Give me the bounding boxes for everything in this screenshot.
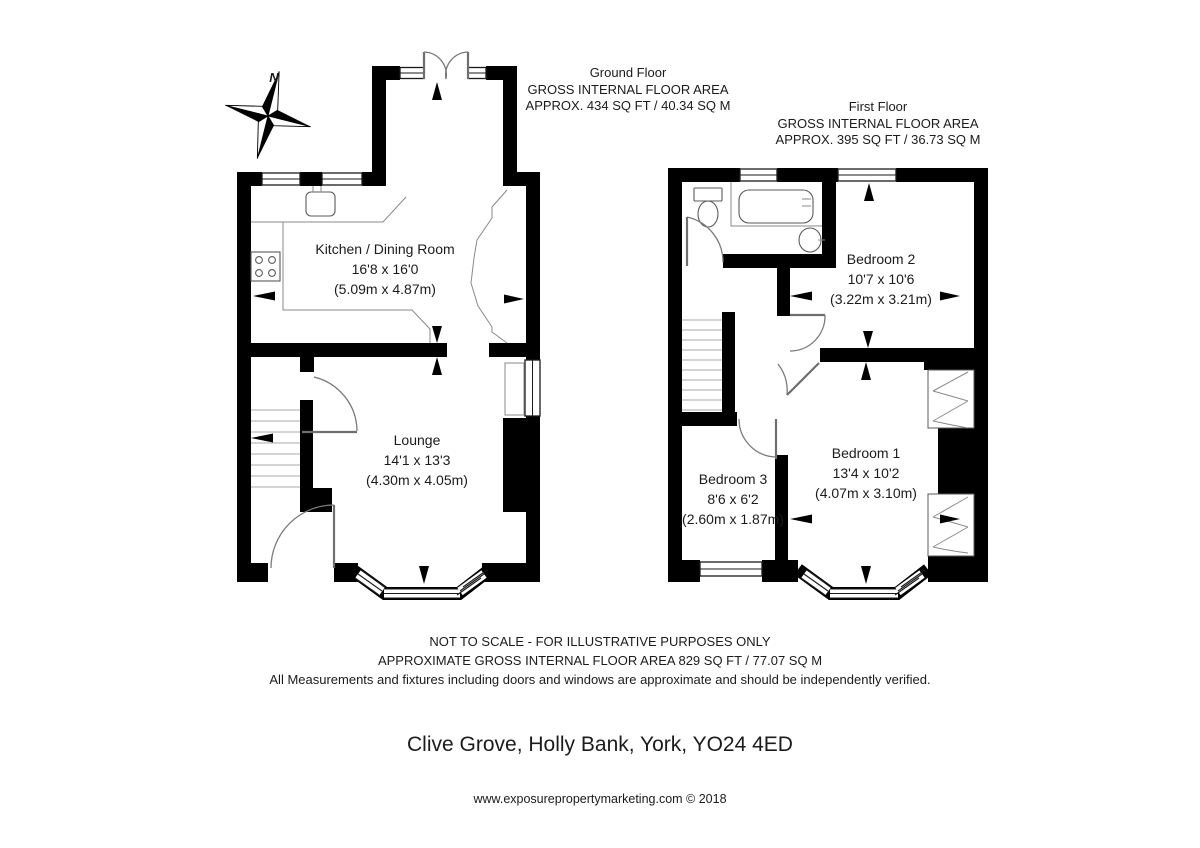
room-size-metric: (5.09m x 4.87m): [315, 279, 454, 299]
kitchen-sink-icon: [306, 186, 335, 216]
compass-rose-icon: [215, 61, 322, 170]
compass-north-label: N: [269, 70, 278, 85]
disclaimer-line-2: APPROXIMATE GROSS INTERNAL FLOOR AREA 82…: [269, 651, 930, 670]
bedroom1-door: [778, 363, 819, 395]
french-doors: [424, 52, 468, 79]
disclaimer-line-3: All Measurements and fixtures including …: [269, 670, 930, 689]
bathroom-fixtures: [694, 182, 825, 252]
first-floor-plan: [668, 168, 988, 598]
staircase: [251, 410, 300, 487]
room-size-metric: (2.60m x 1.87m): [682, 509, 784, 529]
room-name: Bedroom 2: [830, 249, 932, 269]
first-floor-area-value: APPROX. 395 SQ FT / 36.73 SQ M: [776, 132, 981, 149]
room-size-imperial: 14'1 x 13'3: [366, 450, 468, 470]
ground-floor-area-label: GROSS INTERNAL FLOOR AREA: [526, 82, 731, 99]
hob-icon: [251, 252, 280, 281]
marketing-credit: www.exposurepropertymarketing.com © 2018: [473, 792, 726, 806]
room-label-kitchen: Kitchen / Dining Room 16'8 x 16'0 (5.09m…: [315, 239, 454, 299]
room-size-imperial: 16'8 x 16'0: [315, 259, 454, 279]
wardrobe-top: [928, 370, 974, 428]
floorplan-drawing: [0, 0, 1200, 848]
room-size-metric: (4.30m x 4.05m): [366, 470, 468, 490]
bath-icon: [739, 190, 813, 223]
ground-floor-plan: [237, 52, 540, 598]
room-size-imperial: 10'7 x 10'6: [830, 269, 932, 289]
room-label-bedroom3: Bedroom 3 8'6 x 6'2 (2.60m x 1.87m): [682, 469, 784, 529]
property-address: Clive Grove, Holly Bank, York, YO24 4ED: [407, 733, 793, 757]
room-name: Lounge: [366, 430, 468, 450]
room-name: Kitchen / Dining Room: [315, 239, 454, 259]
ground-floor-header: Ground Floor GROSS INTERNAL FLOOR AREA A…: [526, 65, 731, 115]
room-size-imperial: 13'4 x 10'2: [815, 463, 917, 483]
ground-floor-title: Ground Floor: [526, 65, 731, 82]
wardrobe-bottom: [928, 494, 974, 556]
disclaimer: NOT TO SCALE - FOR ILLUSTRATIVE PURPOSES…: [269, 632, 930, 689]
room-size-imperial: 8'6 x 6'2: [682, 489, 784, 509]
ground-floor-walls: [237, 66, 540, 582]
floorplan-page: N Ground Floor GROSS INTERNAL FLOOR AREA…: [0, 0, 1200, 848]
disclaimer-line-1: NOT TO SCALE - FOR ILLUSTRATIVE PURPOSES…: [269, 632, 930, 651]
bedroom3-door: [739, 419, 776, 459]
ground-floor-area-value: APPROX. 434 SQ FT / 40.34 SQ M: [526, 98, 731, 115]
basin-icon: [799, 228, 825, 252]
room-name: Bedroom 1: [815, 443, 917, 463]
front-door: [271, 505, 334, 568]
staircase-first-floor: [682, 320, 722, 410]
room-name: Bedroom 3: [682, 469, 784, 489]
bedroom2-door: [790, 315, 825, 351]
room-label-bedroom1: Bedroom 1 13'4 x 10'2 (4.07m x 3.10m): [815, 443, 917, 503]
first-floor-header: First Floor GROSS INTERNAL FLOOR AREA AP…: [776, 99, 981, 149]
first-floor-area-label: GROSS INTERNAL FLOOR AREA: [776, 116, 981, 133]
room-label-lounge: Lounge 14'1 x 13'3 (4.30m x 4.05m): [366, 430, 468, 490]
bay-window: [352, 570, 490, 599]
room-size-metric: (4.07m x 3.10m): [815, 483, 917, 503]
room-label-bedroom2: Bedroom 2 10'7 x 10'6 (3.22m x 3.21m): [830, 249, 932, 309]
first-floor-title: First Floor: [776, 99, 981, 116]
bay-window-first-floor: [798, 570, 928, 599]
ground-floor-dimension-arrows: [251, 82, 526, 584]
room-size-metric: (3.22m x 3.21m): [830, 289, 932, 309]
